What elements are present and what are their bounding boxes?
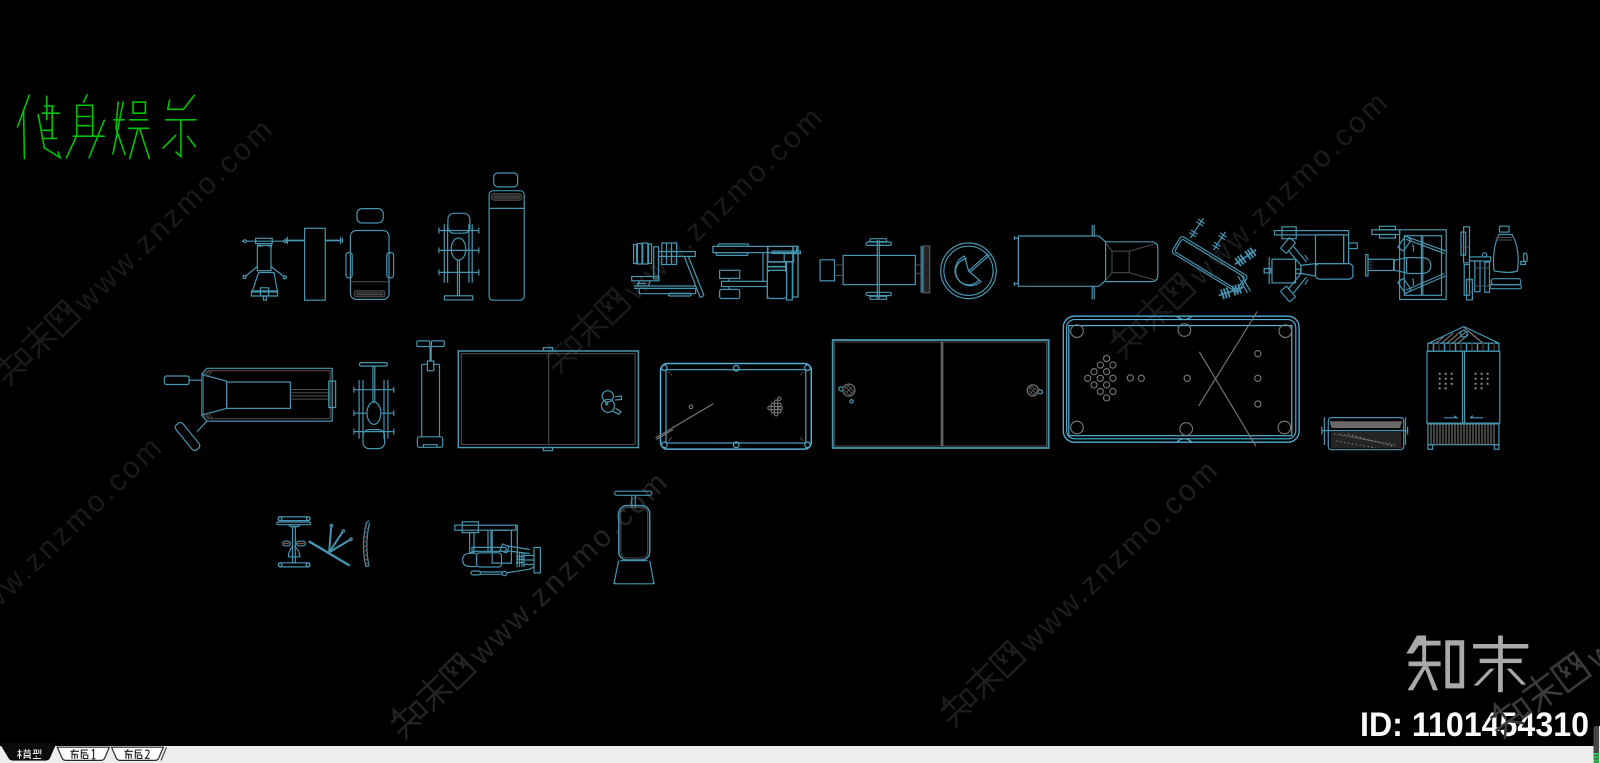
svg-text:ID: 1101454310: ID: 1101454310 xyxy=(1360,706,1589,744)
